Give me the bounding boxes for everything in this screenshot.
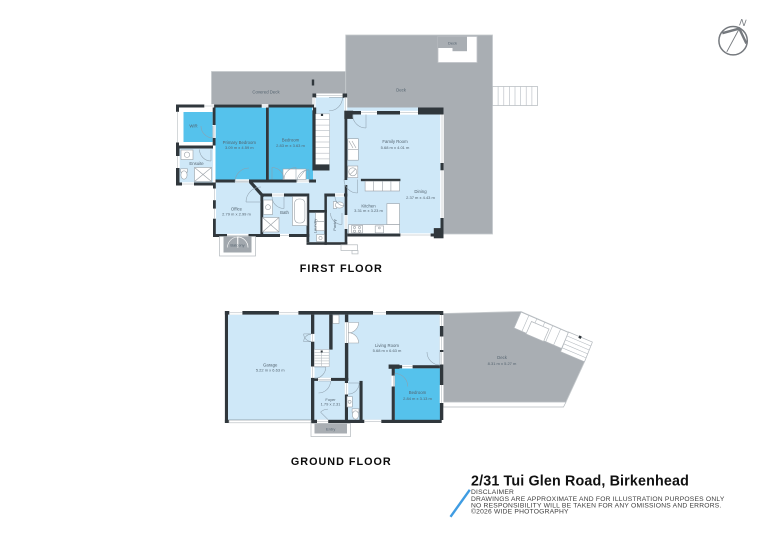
svg-text:WIR: WIR <box>189 124 197 129</box>
svg-text:Dining: Dining <box>414 189 427 194</box>
svg-text:Entry: Entry <box>326 427 335 432</box>
svg-text:Deck: Deck <box>396 88 407 93</box>
svg-text:2.79 m x 2.99 m: 2.79 m x 2.99 m <box>222 211 251 216</box>
svg-text:2.84 m x 3.13 m: 2.84 m x 3.13 m <box>403 396 432 401</box>
svg-text:Balcony: Balcony <box>230 243 244 248</box>
svg-text:5.68 m x 4.01 m: 5.68 m x 4.01 m <box>381 145 410 150</box>
svg-text:Deck: Deck <box>497 355 508 360</box>
svg-text:DISCLAIMER: DISCLAIMER <box>471 489 514 496</box>
svg-text:Bedroom: Bedroom <box>282 137 300 142</box>
svg-text:2.83 m x 3.63 m: 2.83 m x 3.63 m <box>276 143 305 148</box>
svg-text:Bath: Bath <box>280 210 289 215</box>
svg-text:Laundry: Laundry <box>313 219 318 233</box>
svg-text:2/31 Tui Glen Road, Birkenhead: 2/31 Tui Glen Road, Birkenhead <box>471 474 689 490</box>
svg-text:1.79 x 2.31: 1.79 x 2.31 <box>321 402 342 407</box>
svg-text:Bedroom: Bedroom <box>409 390 427 395</box>
svg-text:Ensuite: Ensuite <box>189 161 204 166</box>
svg-text:2.37 m x 4.43 m: 2.37 m x 4.43 m <box>406 195 435 200</box>
svg-text:FIRST FLOOR: FIRST FLOOR <box>300 263 383 275</box>
svg-text:5.68 m x 6.63 m: 5.68 m x 6.63 m <box>373 348 402 353</box>
svg-text:Deck: Deck <box>448 41 457 46</box>
svg-text:3.31 m x 3.23 m: 3.31 m x 3.23 m <box>354 208 383 213</box>
svg-text:Covered Deck: Covered Deck <box>252 90 280 95</box>
svg-text:5.22 m x 6.63 m: 5.22 m x 6.63 m <box>256 367 285 372</box>
svg-text:Pantry: Pantry <box>332 219 337 231</box>
svg-text:GROUND FLOOR: GROUND FLOOR <box>291 456 392 468</box>
svg-text:Family Room: Family Room <box>382 139 408 144</box>
svg-text:3.09 m x 4.59 m: 3.09 m x 4.59 m <box>225 145 254 150</box>
svg-text:8.31 m x 5.27 m: 8.31 m x 5.27 m <box>488 361 517 366</box>
svg-text:©2026 WIDE PHOTOGRAPHY: ©2026 WIDE PHOTOGRAPHY <box>471 508 569 516</box>
